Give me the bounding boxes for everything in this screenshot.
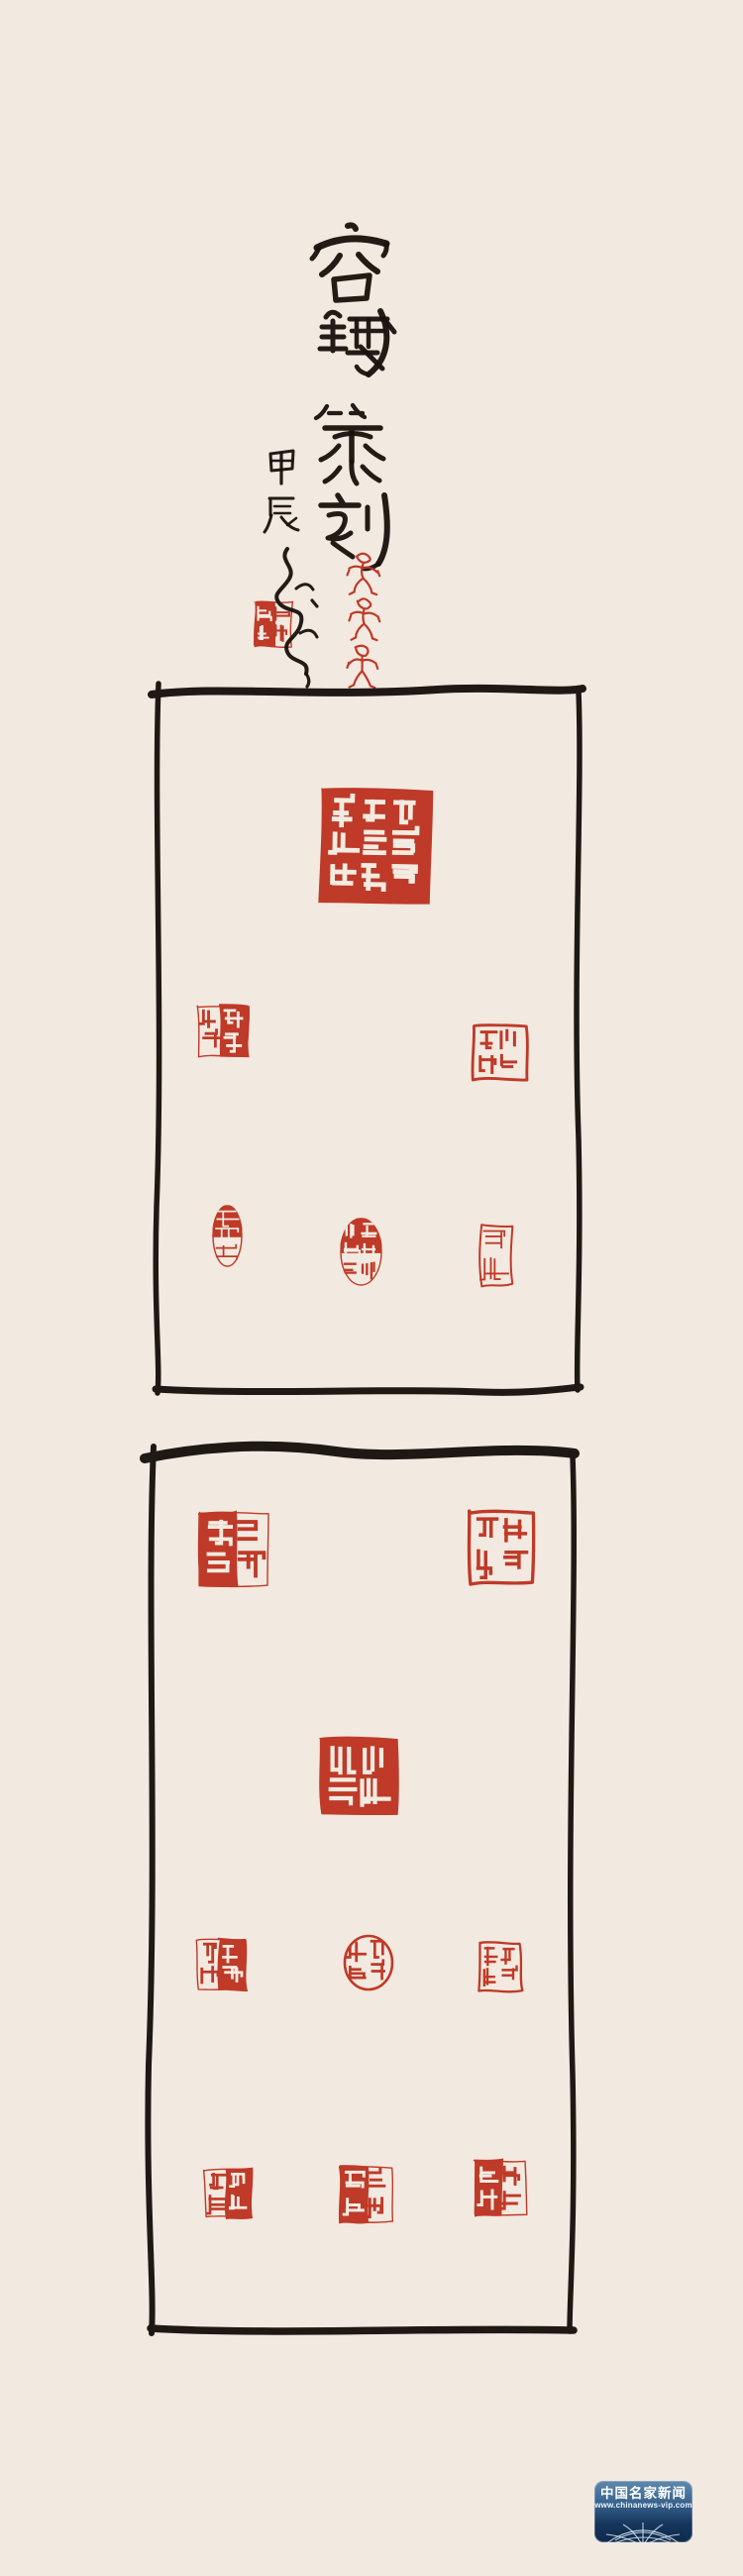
seal-top-row2-left (196, 1004, 250, 1058)
seal-bottom-row1-right (469, 1510, 535, 1585)
seal-bottom-row3-left (203, 2168, 254, 2219)
seal-bottom-row2-right (478, 1941, 523, 1993)
figure-seal-2 (347, 596, 381, 642)
seal-bottom-row3-mid (339, 2165, 394, 2224)
seal-bottom-center (319, 1737, 400, 1816)
seal-top-row3-right (478, 1224, 513, 1287)
globe-icon (594, 2513, 692, 2542)
seal-top-row2-right (472, 1023, 528, 1081)
seal-bottom-row2-left (195, 1938, 248, 1991)
inscription-calligraphy (255, 442, 349, 690)
seal-bottom-row3-right (473, 2159, 528, 2217)
artwork-scroll: 中国名家新闻 www.chinanews-vip.com (0, 0, 743, 2576)
seal-bottom-row1-left (198, 1511, 270, 1588)
watermark-site-url: www.chinanews-vip.com (594, 2501, 692, 2510)
seal-top-row3-oval (211, 1204, 244, 1268)
seal-bottom-row2-round (343, 1934, 394, 1991)
news-watermark-badge: 中国名家新闻 www.chinanews-vip.com (594, 2481, 692, 2542)
watermark-site-name: 中国名家新闻 (594, 2486, 692, 2501)
figure-seal-1 (345, 551, 381, 596)
seal-academy (318, 787, 433, 905)
seal-top-row3-gourd (339, 1217, 383, 1287)
